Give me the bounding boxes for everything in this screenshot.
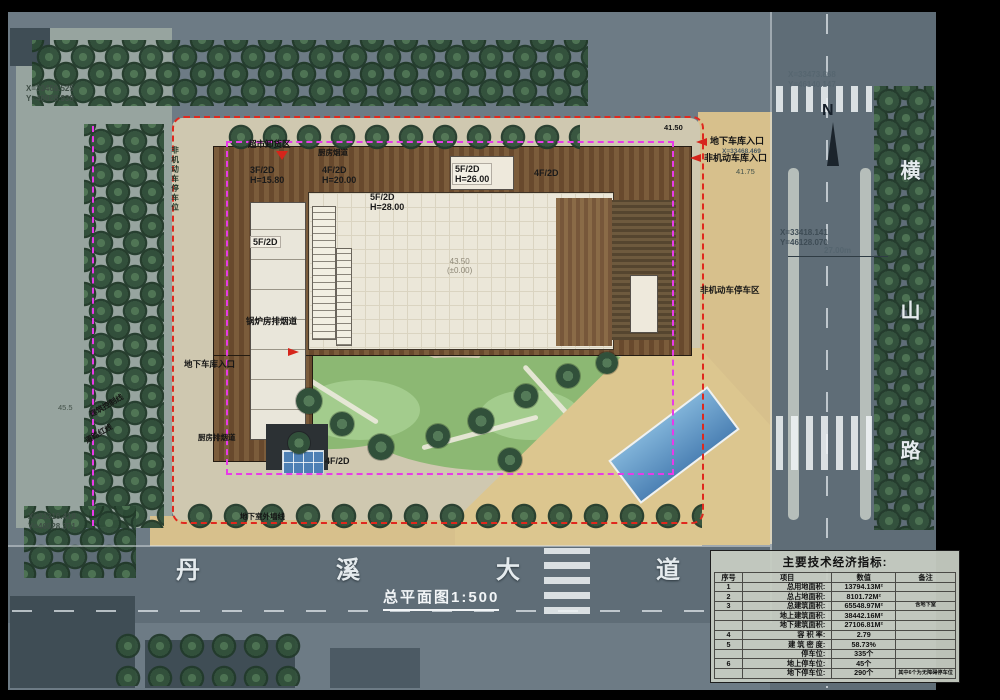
coordinate-x: X=33316.418: [28, 512, 76, 522]
storey-label: 3F/2D: [250, 165, 284, 175]
table-cell: 总用地面积:: [743, 582, 832, 592]
indicators-table-panel: 主要技术经济指标: 序号项目数值备注 1总用地面积:13794.13M²2总占地…: [710, 550, 960, 683]
table-cell: 8101.72M²: [832, 592, 896, 602]
annotation-garage-entry-left: 地下车库入口: [184, 360, 235, 370]
site-plan-canvas: N 27.00m X=33466.525 Y=46028.938 X=33316…: [0, 0, 1000, 700]
table-row: 停车位:335个: [715, 649, 956, 659]
table-cell: 3: [715, 601, 743, 611]
coordinate-y: Y=46140.147: [788, 80, 836, 90]
table-cell: 4: [715, 630, 743, 640]
table-cell: [896, 640, 956, 650]
table-cell: 38442.16M²: [832, 611, 896, 621]
table-cell: 地下停车位:: [743, 668, 832, 678]
table-row: 4容 积 率:2.79: [715, 630, 956, 640]
annotation-unloading: 超市卸货区: [248, 140, 291, 150]
curb-line-bottom: [8, 545, 770, 547]
table-cell: [896, 620, 956, 630]
table-row: 地上建筑面积:38442.16M²: [715, 611, 956, 621]
table-cell: 地上停车位:: [743, 659, 832, 669]
storey-height: H=20.00: [322, 175, 356, 185]
coordinate-top-left: X=33466.525 Y=46028.938: [26, 84, 74, 104]
coordinate-x: X=33466.525: [26, 84, 74, 94]
storey-label: 4F/2D: [534, 168, 559, 178]
road-red-line-left: [92, 126, 94, 526]
annotation-boiler-flue: 锅炉房排烟道: [246, 317, 297, 327]
indicators-table: 序号项目数值备注 1总用地面积:13794.13M²2总占地面积:8101.72…: [714, 572, 956, 679]
table-cell: [896, 659, 956, 669]
table-row: 地下停车位:290个其中6个为无障碍停车位: [715, 668, 956, 678]
annotation-kitchen-exhaust: 厨房排烟道: [198, 434, 236, 443]
table-cell: [896, 592, 956, 602]
storey-height: H=15.80: [250, 175, 284, 185]
table-cell: 27106.81M²: [832, 620, 896, 630]
table-cell: 其中6个为无障碍停车位: [896, 668, 956, 678]
building-control-line: [226, 141, 674, 475]
table-cell: 含地下室: [896, 601, 956, 611]
storey-label: 4F/2D: [325, 456, 350, 466]
street-trees-left: [84, 124, 164, 528]
table-row: 5建 筑 密 度:58.73%: [715, 640, 956, 650]
table-row: 6地上停车位:45个: [715, 659, 956, 669]
table-row: 1总用地面积:13794.13M²: [715, 582, 956, 592]
annotation-bike-parking-right: 非机动车停车区: [700, 286, 760, 296]
crosswalk: [776, 416, 872, 470]
elevation-label: 41.50: [664, 124, 683, 133]
dimension-line: [788, 256, 888, 257]
table-cell: 总占地面积:: [743, 592, 832, 602]
table-cell: 地上建筑面积:: [743, 611, 832, 621]
elevation-label: 41.75: [736, 168, 755, 177]
annotation-garage-entry-right: 地下车库入口: [710, 136, 764, 146]
table-cell: 6: [715, 659, 743, 669]
table-body: 1总用地面积:13794.13M²2总占地面积:8101.72M²3总建筑面积:…: [715, 582, 956, 678]
table-cell: [896, 630, 956, 640]
table-cell: 290个: [832, 668, 896, 678]
coordinate-y: Y=46128.070: [780, 238, 828, 248]
north-label: N: [822, 102, 834, 120]
coordinate-y: Y=46028.938: [26, 94, 74, 104]
table-cell: 1: [715, 582, 743, 592]
entry-arrow-icon: [690, 154, 701, 162]
storey-height: H=26.00: [455, 174, 489, 184]
coordinate-right-mid: X=33418.141 Y=46128.070: [780, 228, 828, 248]
table-row: 2总占地面积:8101.72M²: [715, 592, 956, 602]
storey-label: 5F/2D: [455, 164, 489, 174]
table-cell: 335个: [832, 649, 896, 659]
annotation-kitchen-flue: 厨房烟道: [318, 149, 348, 158]
table-cell: [896, 649, 956, 659]
entry-arrow-icon: [288, 348, 299, 356]
storey-label: 5F/2D: [253, 237, 278, 247]
coordinate-bottom-left: X=33316.418 Y=46028.371: [28, 512, 76, 532]
dimension-value: 27.00m: [824, 246, 851, 256]
table-row: 地下建筑面积:27106.81M²: [715, 620, 956, 630]
lane-divider-bottom-road: [12, 610, 712, 612]
storey-height: H=28.00: [370, 202, 404, 212]
storey-label: 4F/2D: [322, 165, 356, 175]
table-cell: 13794.13M²: [832, 582, 896, 592]
coordinate-y: Y=46028.371: [28, 522, 76, 532]
curb-line-right: [770, 12, 772, 623]
center-elevation-zero: (±0.00): [447, 267, 472, 276]
table-cell: [715, 620, 743, 630]
street-trees-bottom: [112, 630, 302, 686]
coordinate-x: X=33418.141: [780, 228, 828, 238]
plan-title: 总平面图1:500: [383, 586, 499, 611]
table-cell: 总建筑面积:: [743, 601, 832, 611]
table-cell: 2.79: [832, 630, 896, 640]
table-cell: 2: [715, 592, 743, 602]
north-arrow-icon: [827, 122, 839, 166]
table-header-cell: 数值: [832, 573, 896, 583]
elevation-label: 45.5: [58, 404, 73, 413]
table-cell: [715, 649, 743, 659]
table-header-row: 序号项目数值备注: [715, 573, 956, 583]
table-cell: 地下建筑面积:: [743, 620, 832, 630]
table-cell: 建 筑 密 度:: [743, 640, 832, 650]
unloading-marker-icon: [276, 151, 288, 160]
table-cell: 容 积 率:: [743, 630, 832, 640]
table-cell: 65548.97M²: [832, 601, 896, 611]
street-trees-top: [32, 40, 588, 106]
indicators-table-title: 主要技术经济指标:: [714, 553, 956, 572]
coordinate-top-right: X=33473.868 Y=46140.147: [788, 70, 836, 90]
adjacent-building-block: [330, 648, 420, 688]
storey-label: 5F/2D: [370, 192, 404, 202]
table-header-cell: 项目: [743, 573, 832, 583]
entry-arrow-icon: [696, 138, 707, 146]
table-header-cell: 备注: [896, 573, 956, 583]
coordinate-x: X=33473.868: [788, 70, 836, 80]
road-name-right: 横山路: [894, 160, 923, 580]
table-cell: [896, 582, 956, 592]
table-cell: 5: [715, 640, 743, 650]
table-cell: [896, 611, 956, 621]
table-cell: [715, 668, 743, 678]
table-cell: 58.73%: [832, 640, 896, 650]
annotation-bike-parking-left: 非机动车停车位: [170, 146, 179, 213]
annotation-bike-entry-right: 非机动车库入口: [704, 153, 767, 163]
table-header-cell: 序号: [715, 573, 743, 583]
table-row: 3总建筑面积:65548.97M²含地下室: [715, 601, 956, 611]
table-cell: 45个: [832, 659, 896, 669]
table-cell: [715, 611, 743, 621]
table-cell: 停车位:: [743, 649, 832, 659]
annotation-basement-wall: 地下室外墙线: [240, 513, 285, 522]
